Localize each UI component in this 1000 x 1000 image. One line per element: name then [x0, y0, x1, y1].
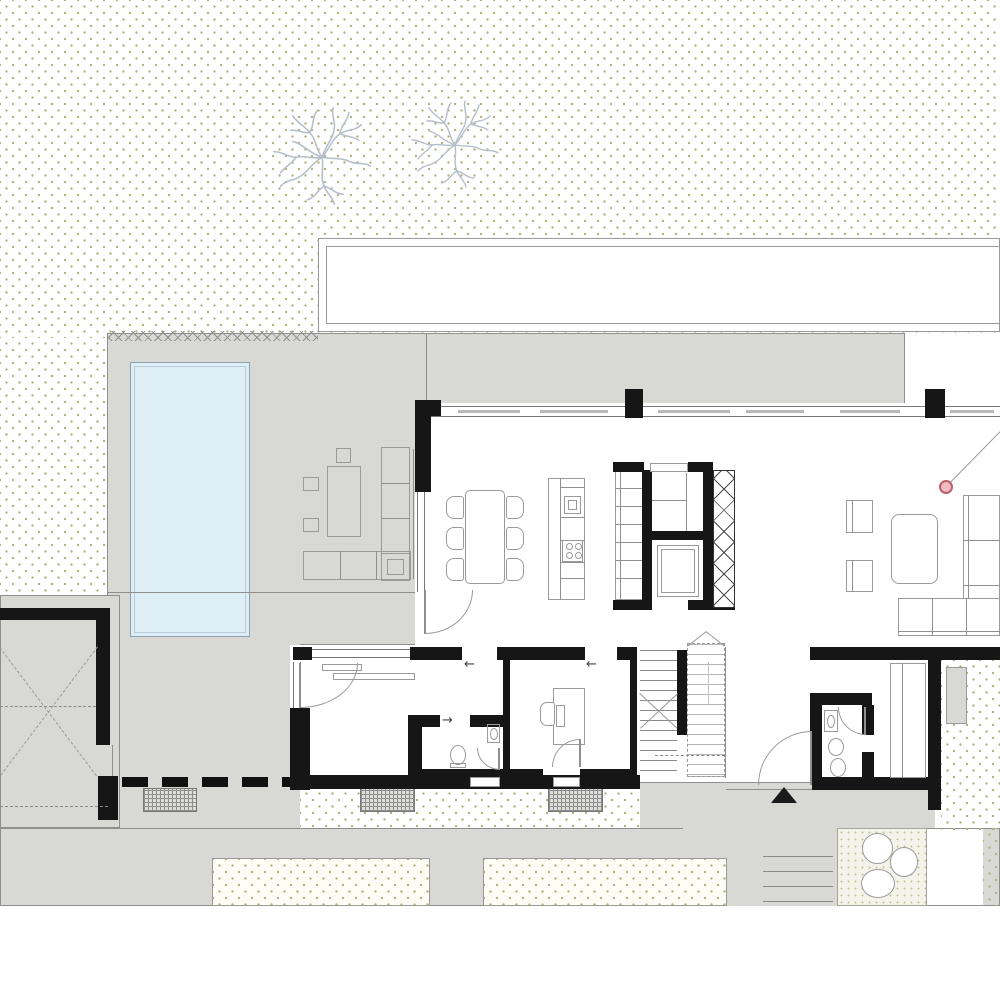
column-north-east — [925, 389, 945, 418]
hob-burner-2 — [575, 543, 582, 550]
dining-chair-l2 — [446, 527, 464, 550]
entrance-triangle — [771, 787, 797, 803]
door-main-leaf — [810, 731, 812, 785]
hall-bath-north-wall — [810, 647, 930, 660]
vent-arrow-1: ← — [464, 659, 492, 671]
office-west-wall — [503, 647, 510, 778]
dots-bottom-right — [983, 828, 1000, 906]
boundary-bold-dash — [122, 777, 294, 787]
bath-bidet — [830, 758, 846, 777]
office-north-wall — [497, 647, 585, 660]
dining-chair-l1 — [446, 496, 464, 519]
window-frame-6 — [950, 410, 994, 413]
door-entry-leaf — [299, 663, 301, 708]
kitchen-island-line-1 — [560, 487, 585, 488]
chimney-vent — [650, 463, 688, 472]
patio-sofa-edge-line — [413, 449, 414, 579]
entry-corner-pier — [293, 647, 312, 660]
window-frame-3 — [658, 410, 730, 413]
dining-table — [465, 490, 505, 584]
wc-toilet-tank — [450, 763, 466, 768]
patio-table — [327, 466, 361, 537]
stairs-landing-dash — [655, 755, 725, 756]
hob-burner-4 — [575, 552, 582, 559]
door-wc-leaf — [498, 748, 500, 770]
pantry-shelf-4 — [615, 542, 645, 543]
door-office-leaf — [579, 739, 581, 767]
garage-dash-mid — [0, 706, 96, 707]
kitchen-sink-basin — [568, 500, 577, 510]
wc-south-wall — [408, 769, 510, 777]
closet — [890, 663, 926, 778]
niche-line-v — [686, 473, 687, 531]
patio-sofa-div-2 — [381, 518, 410, 519]
threshold-line-2 — [726, 789, 812, 790]
door-bath-leaf — [864, 707, 866, 735]
tree-1 — [266, 99, 378, 211]
patio-sofa-div-3 — [340, 551, 341, 580]
closet-line — [902, 663, 903, 778]
window-frame-4 — [746, 410, 804, 413]
roof-canopy-band — [426, 333, 905, 405]
garage-door-post — [98, 776, 118, 820]
entry-sill-shelf-1 — [322, 664, 362, 671]
south-wall-east — [812, 777, 930, 790]
garage-dash-sill — [0, 806, 108, 807]
stepping-stone-1 — [862, 833, 893, 864]
pantry-shelf-1 — [615, 488, 645, 489]
patio-sofa-div-1 — [381, 483, 410, 484]
ground-dots-left — [0, 337, 108, 595]
pantry-shelf-line-v — [620, 470, 621, 600]
window-west — [417, 492, 425, 592]
kitchen-island-line-5 — [560, 578, 585, 579]
east-edge-wall — [941, 647, 1000, 660]
chimney-wall-bottom-left — [613, 600, 652, 610]
patio-stool-top — [336, 448, 351, 463]
step-treads — [763, 856, 833, 906]
dining-chair-l3 — [446, 558, 464, 581]
courtyard-planter — [946, 667, 967, 724]
coffee-table — [891, 514, 938, 584]
kitchen-island-line-2 — [560, 517, 585, 518]
dining-chair-r3 — [506, 558, 524, 581]
pantry-shelf-2 — [615, 506, 645, 507]
office-chair — [540, 702, 555, 726]
chimney-wall-left — [642, 470, 652, 608]
window-frame-2 — [540, 410, 608, 413]
stairs-flight-left — [640, 650, 677, 776]
door-arrow-wc: → — [442, 715, 466, 727]
pantry-shelf-3 — [615, 524, 645, 525]
office-east-wall — [630, 647, 637, 789]
vent-arrow-2: ← — [586, 659, 614, 671]
window-slot-2 — [553, 777, 580, 787]
patio-stool-1 — [303, 477, 319, 491]
sofa-chaise-div-2 — [963, 585, 1000, 586]
patio-outline-inner — [326, 246, 1000, 324]
column-nw-v — [415, 400, 431, 492]
chimney-wall-top-left — [613, 462, 644, 472]
wc-sink-basin — [490, 728, 498, 740]
niche-line-h — [652, 500, 686, 501]
sofa-base-back — [898, 631, 1000, 632]
armchair-2 — [846, 560, 873, 592]
dining-chair-r2 — [506, 527, 524, 550]
vent-grate-1 — [143, 788, 197, 812]
entry-sill-shelf-2 — [333, 673, 415, 680]
bath-sink-basin — [827, 715, 835, 728]
terrace-level-line — [107, 592, 427, 593]
kitchen-island-line-4 — [560, 562, 585, 563]
vent-grate-2 — [360, 788, 415, 812]
camera-marker — [939, 480, 953, 494]
patio-stool-2 — [303, 518, 319, 532]
hedge-zigzag — [107, 331, 318, 341]
garage-wall-top — [0, 608, 108, 620]
garage-door-track — [112, 745, 113, 776]
patio-sofa-corner-inner — [387, 559, 404, 575]
kitchen-island-divider — [560, 478, 561, 600]
office-south-wall-west — [510, 769, 543, 777]
planting-bed-a — [212, 858, 430, 906]
office-monitor — [556, 705, 565, 727]
stairs-label-mark — [708, 662, 709, 704]
floor-plan-canvas: ←←→ — [0, 0, 1000, 1000]
window-entry-north — [312, 649, 415, 658]
stepping-stone-2 — [890, 847, 918, 877]
hob-burner-3 — [566, 552, 573, 559]
south-wall-west — [290, 775, 640, 789]
armchair-1 — [846, 500, 873, 533]
threshold-line-1 — [726, 782, 812, 783]
pantry-shelf-5 — [615, 560, 645, 561]
stepping-stone-3 — [861, 869, 895, 898]
entry-north-pier-east — [410, 647, 462, 660]
sofa-chaise-div-1 — [963, 540, 1000, 541]
hob-burner-1 — [566, 543, 573, 550]
door-terrace-leaf — [424, 590, 426, 634]
armchair-2-back — [852, 560, 853, 592]
garage-wall-right — [96, 608, 110, 745]
armchair-1-back — [852, 500, 853, 533]
window-frame-1 — [458, 410, 520, 413]
chimney-wall-mid — [652, 531, 703, 540]
wc-toilet — [450, 745, 466, 765]
bath-toilet — [828, 738, 844, 756]
chimney-wall-top-right — [688, 462, 713, 472]
office-south-wall-east — [580, 769, 637, 777]
column-north-mid — [625, 389, 643, 418]
dining-chair-r1 — [506, 496, 524, 519]
chimney-wall-right — [703, 470, 713, 608]
stairs-mid-wall — [677, 650, 687, 735]
planting-bed-b — [483, 858, 727, 906]
pantry-shelf-6 — [615, 578, 645, 579]
vent-grate-3 — [548, 788, 603, 812]
patio-sofa-right — [381, 447, 410, 554]
window-slot-1 — [470, 777, 500, 787]
shaft-xhatch — [713, 470, 735, 608]
stairs-east-line — [725, 647, 726, 778]
patio-sofa-div-4 — [376, 551, 377, 580]
window-frame-5 — [840, 410, 900, 413]
sidewalk-gap-white — [927, 829, 983, 905]
fireplace-inner — [661, 549, 695, 593]
stairs-flight-right — [687, 643, 725, 777]
tree-2 — [405, 93, 505, 193]
